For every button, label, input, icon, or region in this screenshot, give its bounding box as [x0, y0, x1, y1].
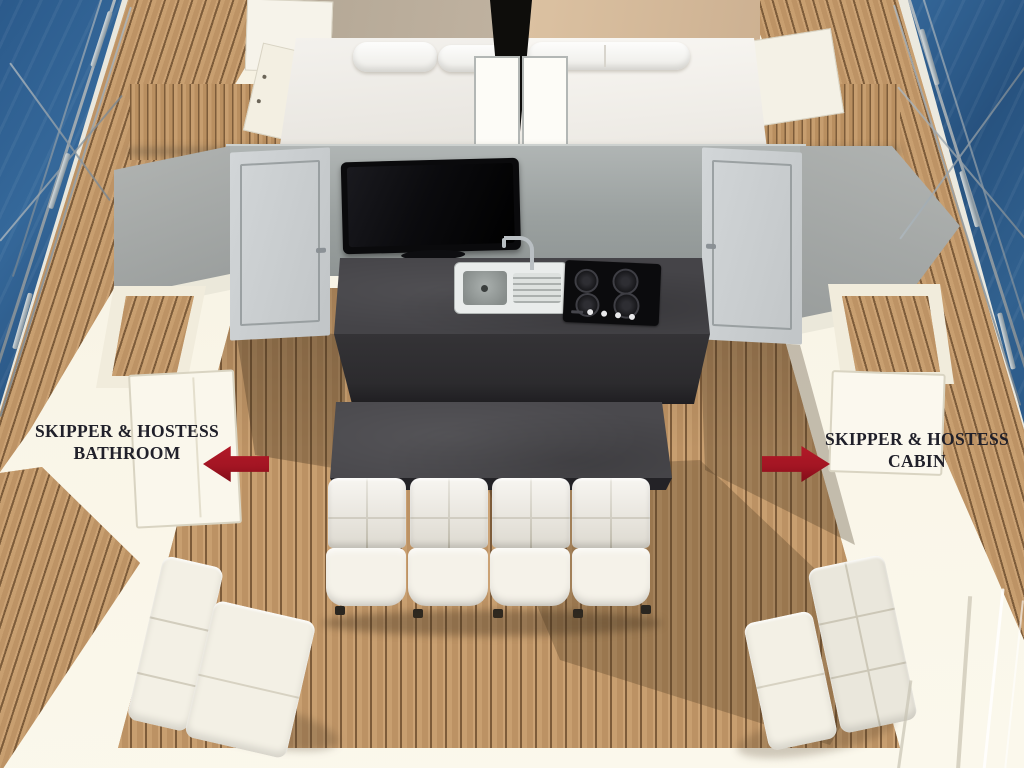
cabinet-handle: [262, 74, 267, 79]
mast-panel-right: [522, 56, 568, 156]
deck-seam: [956, 596, 972, 768]
bathroom-label-line2: BATHROOM: [18, 442, 236, 464]
sofa-back-cushion: [492, 478, 570, 548]
hob-logo-smudge: [571, 310, 583, 314]
cabin-door-right: [702, 147, 802, 344]
railing-hint: [1004, 600, 1024, 768]
sink-drain: [481, 285, 488, 292]
hob-knob: [601, 311, 607, 317]
cabin-door-left: [230, 147, 330, 340]
sofa-seat-cushion: [490, 548, 570, 606]
yacht-deck-render: SKIPPER & HOSTESS BATHROOM SKIPPER & HOS…: [0, 0, 1024, 768]
sofa-foot: [335, 606, 345, 615]
sofa-bottom-right: [723, 544, 927, 755]
bathroom-label-line1: SKIPPER & HOSTESS: [18, 420, 236, 442]
cabinet-top-right: [750, 28, 844, 126]
bathroom-label: SKIPPER & HOSTESS BATHROOM: [18, 420, 236, 464]
sofa-shadow: [322, 610, 662, 636]
sofa-back-cushion: [572, 478, 650, 548]
chaise-left: [119, 542, 321, 759]
tv-screen: [347, 163, 515, 247]
pillow: [353, 42, 437, 72]
cabin-label: SKIPPER & HOSTESS CABIN: [810, 428, 1024, 472]
sofa-seat-cushion: [326, 548, 406, 606]
door-handle: [706, 244, 716, 250]
sofa-seat-cushion: [408, 548, 488, 606]
sofa-foot: [641, 605, 651, 614]
hob: [563, 260, 662, 326]
galley-counter-front: [330, 334, 714, 404]
hob-knob: [629, 314, 635, 320]
cabin-label-line1: SKIPPER & HOSTESS: [810, 428, 1024, 450]
cabin-label-line2: CABIN: [810, 450, 1024, 472]
cabinet-handle: [256, 99, 261, 104]
faucet: [504, 236, 534, 270]
sink-bowl: [463, 271, 507, 305]
door-handle: [316, 248, 326, 254]
mast-panel-left: [474, 56, 520, 156]
sink-drainboard: [513, 273, 561, 303]
faucet-spout: [502, 238, 506, 248]
tv: [341, 158, 522, 263]
hob-burner: [574, 268, 599, 293]
sofa-seat-cushion: [572, 548, 650, 606]
pillow-seam: [604, 45, 606, 67]
hob-burner: [612, 268, 639, 295]
sofa-back-cushion: [328, 478, 406, 548]
bench-right-seat: [840, 296, 942, 374]
sofa-back-cushion: [410, 478, 488, 548]
railing-hint: [982, 588, 1004, 768]
